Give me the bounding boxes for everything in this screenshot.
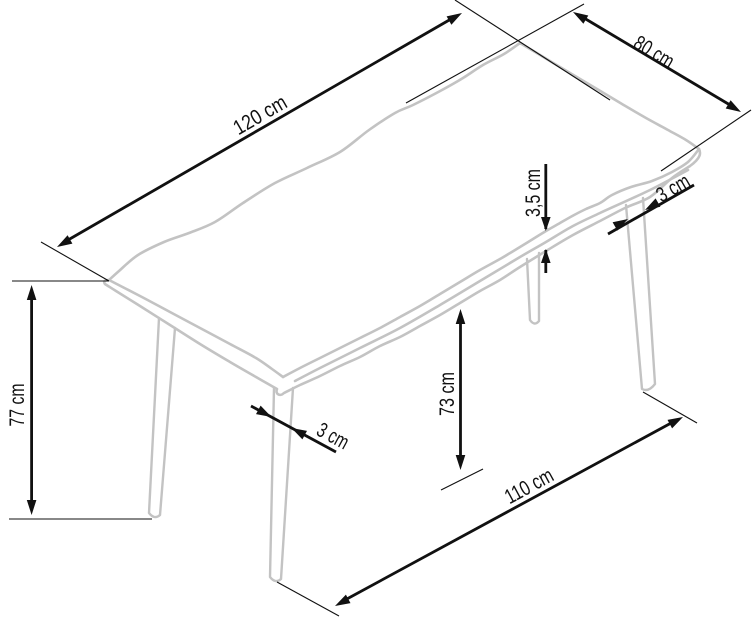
svg-text:77 cm: 77 cm [6,384,29,427]
svg-text:73 cm: 73 cm [436,372,459,416]
svg-text:3,5 cm: 3,5 cm [522,169,545,217]
